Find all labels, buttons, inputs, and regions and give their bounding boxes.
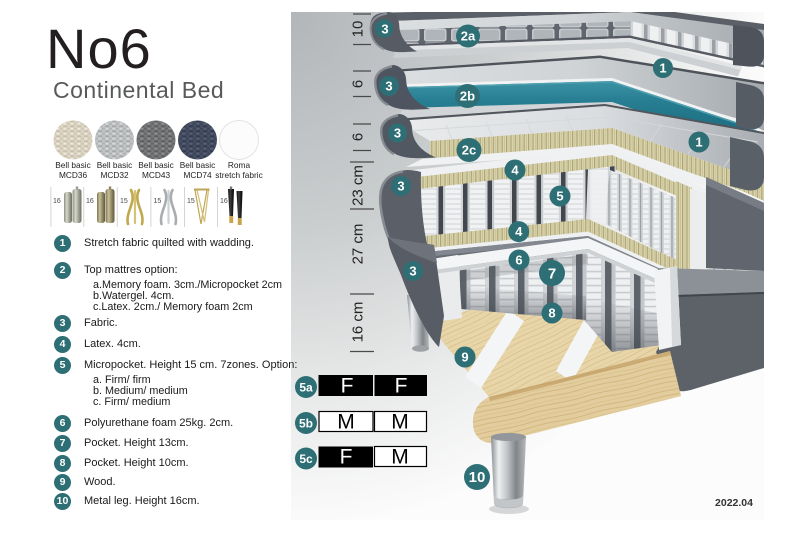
svg-text:9: 9 (461, 350, 468, 365)
svg-text:6: 6 (350, 133, 367, 141)
svg-text:27 cm: 27 cm (350, 224, 367, 265)
svg-text:10: 10 (469, 469, 486, 486)
svg-text:F: F (395, 375, 408, 398)
svg-text:2022.04: 2022.04 (715, 497, 753, 509)
svg-text:5c: 5c (299, 452, 313, 466)
svg-text:1: 1 (695, 135, 702, 150)
svg-text:3: 3 (409, 264, 416, 279)
svg-text:1: 1 (659, 61, 666, 76)
svg-text:F: F (341, 375, 354, 398)
svg-text:M: M (391, 411, 409, 434)
svg-text:3: 3 (394, 126, 401, 141)
svg-text:3: 3 (385, 79, 392, 94)
svg-text:16 cm: 16 cm (350, 302, 367, 343)
svg-text:5: 5 (556, 189, 563, 204)
svg-text:4: 4 (511, 163, 519, 178)
svg-text:4: 4 (515, 224, 523, 239)
svg-text:3: 3 (397, 179, 404, 194)
svg-text:5b: 5b (299, 417, 313, 431)
svg-text:10: 10 (350, 21, 367, 38)
svg-text:23 cm: 23 cm (350, 165, 367, 206)
svg-text:2c: 2c (462, 143, 476, 158)
svg-text:M: M (391, 446, 409, 469)
svg-text:6: 6 (515, 253, 522, 268)
svg-text:M: M (337, 411, 355, 434)
svg-text:5a: 5a (299, 381, 313, 395)
svg-text:2a: 2a (461, 29, 476, 44)
svg-text:2b: 2b (460, 89, 475, 104)
svg-text:F: F (340, 446, 353, 469)
svg-text:6: 6 (350, 80, 367, 88)
svg-text:8: 8 (548, 306, 555, 321)
svg-text:7: 7 (548, 266, 556, 283)
svg-text:3: 3 (381, 22, 388, 37)
